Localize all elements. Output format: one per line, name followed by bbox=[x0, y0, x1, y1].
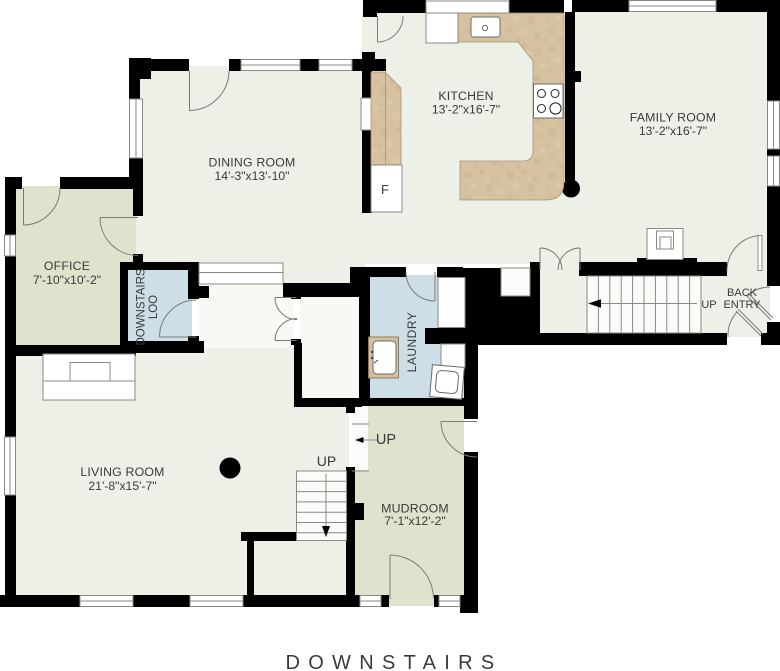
svg-text:7'-10"x10'-2": 7'-10"x10'-2" bbox=[33, 273, 101, 287]
svg-text:LOO: LOO bbox=[148, 295, 160, 319]
svg-text:13'-2"x16'-7": 13'-2"x16'-7" bbox=[639, 124, 707, 138]
svg-text:UP: UP bbox=[317, 453, 336, 469]
svg-text:UP: UP bbox=[701, 299, 716, 311]
svg-text:13'-2"x16'-7": 13'-2"x16'-7" bbox=[432, 103, 500, 117]
svg-text:LIVING ROOM: LIVING ROOM bbox=[80, 465, 164, 479]
svg-text:FAMILY ROOM: FAMILY ROOM bbox=[630, 111, 716, 125]
svg-text:DOWNSTAIRS: DOWNSTAIRS bbox=[136, 268, 148, 345]
svg-text:OFFICE: OFFICE bbox=[44, 259, 90, 273]
svg-text:DOWNSTAIRS: DOWNSTAIRS bbox=[285, 652, 502, 671]
svg-text:BACK: BACK bbox=[727, 287, 758, 299]
svg-text:LAUNDRY: LAUNDRY bbox=[405, 312, 419, 373]
svg-text:UP: UP bbox=[376, 432, 396, 448]
svg-text:DINING ROOM: DINING ROOM bbox=[209, 156, 296, 170]
svg-text:F: F bbox=[381, 182, 389, 197]
svg-text:14'-3"x13'-10": 14'-3"x13'-10" bbox=[215, 169, 290, 183]
svg-text:21'-8"x15'-7": 21'-8"x15'-7" bbox=[88, 479, 156, 493]
svg-text:7'-1"x12'-2": 7'-1"x12'-2" bbox=[384, 514, 445, 528]
svg-text:KITCHEN: KITCHEN bbox=[438, 89, 493, 103]
svg-text:ENTRY: ENTRY bbox=[723, 299, 761, 311]
